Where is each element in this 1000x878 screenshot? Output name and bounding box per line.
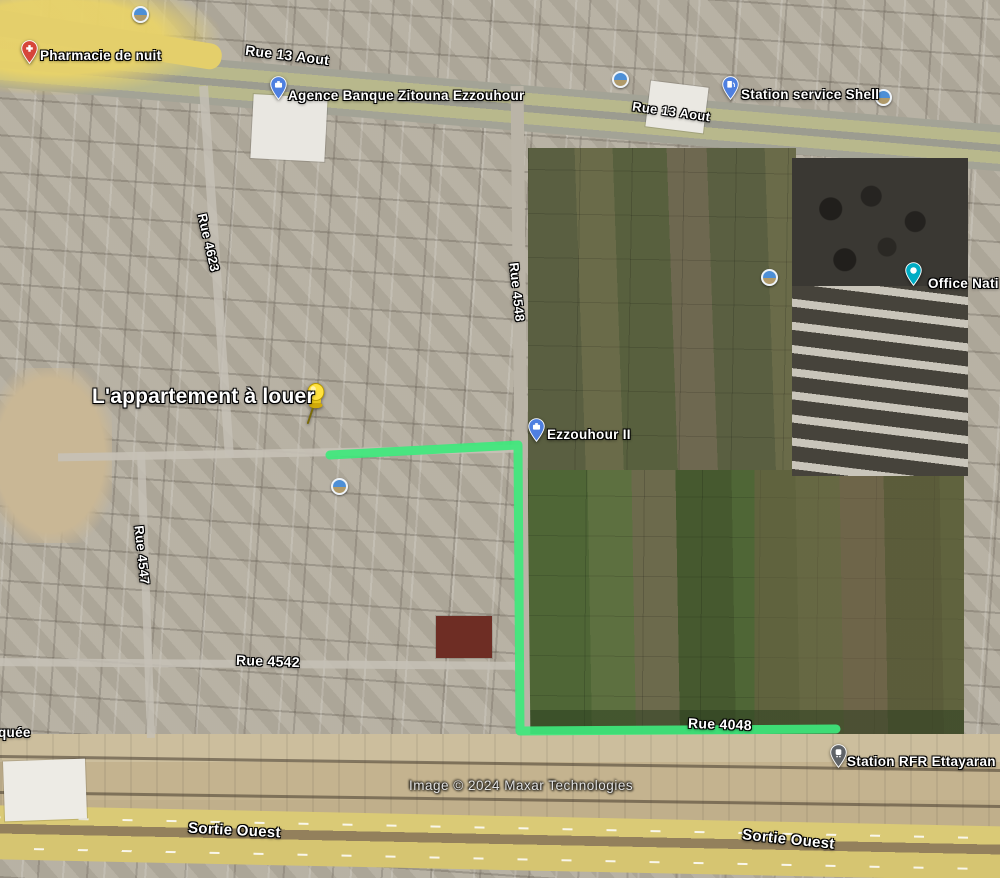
bank-building xyxy=(250,94,327,162)
street-label-rue-4542: Rue 4542 xyxy=(236,652,300,670)
industrial-zone xyxy=(792,158,968,476)
poi-label-ezzouhour[interactable]: Ezzouhour II xyxy=(547,427,631,442)
bank-pin-icon[interactable] xyxy=(270,76,287,100)
poi-label-shell[interactable]: Station service Shell xyxy=(741,87,879,102)
photo-circle-icon[interactable] xyxy=(761,269,778,286)
gas-station-pin-icon[interactable] xyxy=(722,76,739,100)
farm-fields-lower xyxy=(528,470,964,736)
photo-circle-icon[interactable] xyxy=(612,71,629,88)
satellite-map[interactable]: Pharmacie de nuit Agence Banque Zitouna … xyxy=(0,0,1000,878)
rail-track xyxy=(0,791,1000,808)
red-roof-building xyxy=(436,616,492,658)
office-pin-icon[interactable] xyxy=(905,262,922,286)
white-warehouse xyxy=(3,759,87,822)
photo-circle-icon[interactable] xyxy=(331,478,348,495)
poi-label-partial-mosque[interactable]: quée xyxy=(0,725,31,740)
poi-label-banque[interactable]: Agence Banque Zitouna Ezzouhour xyxy=(288,88,525,103)
train-station-pin-icon[interactable] xyxy=(830,744,847,768)
placemark-label-apartment[interactable]: L'appartement à louer xyxy=(92,385,315,409)
poi-label-pharmacie[interactable]: Pharmacie de nuit xyxy=(40,48,161,63)
street-label-rue-4048: Rue 4048 xyxy=(688,715,752,733)
poi-label-office[interactable]: Office Nati xyxy=(928,276,999,291)
pharmacy-pin-icon[interactable] xyxy=(21,40,38,64)
poi-label-station-rfr[interactable]: Station RFR Ettayaran xyxy=(847,754,996,769)
imagery-attribution: Image © 2024 Maxar Technologies xyxy=(409,778,633,793)
locality-pin-icon[interactable] xyxy=(528,418,545,442)
photo-circle-icon[interactable] xyxy=(132,6,149,23)
